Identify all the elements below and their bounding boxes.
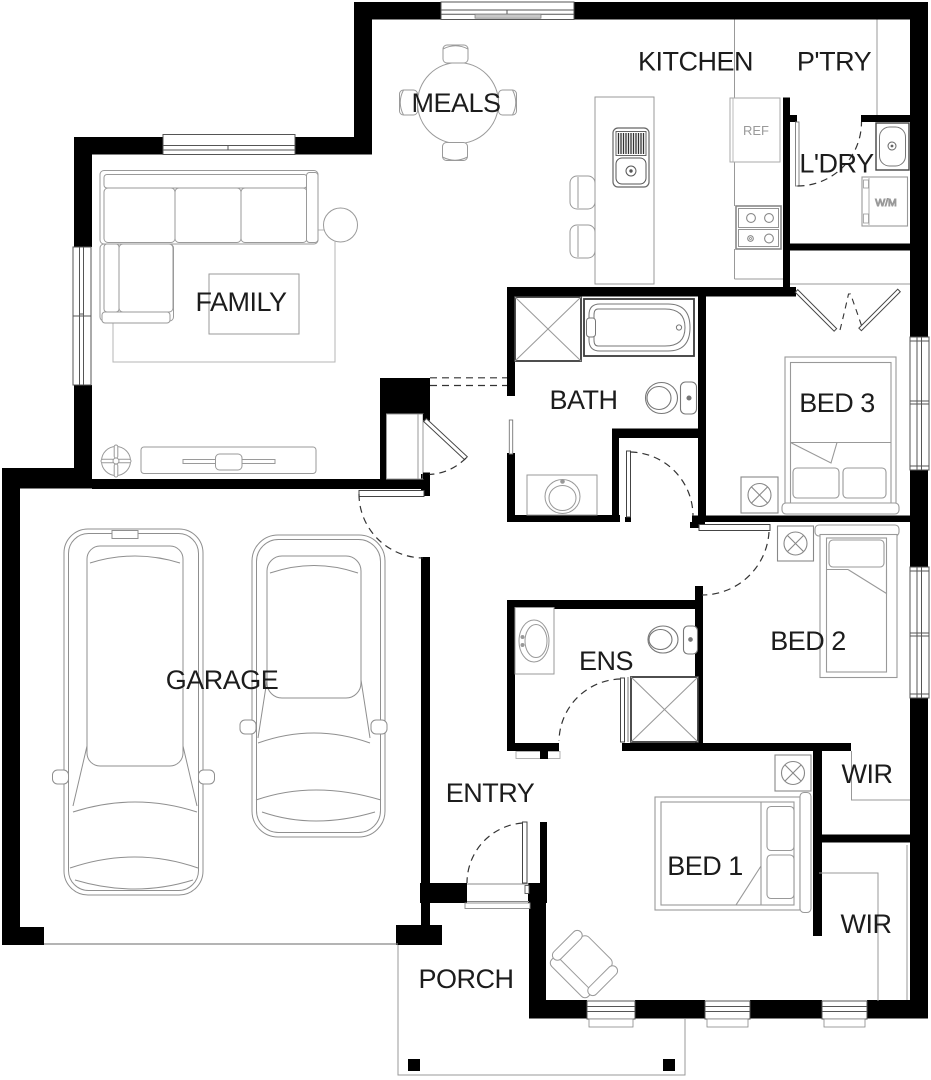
- svg-text:KITCHEN: KITCHEN: [638, 47, 753, 77]
- svg-text:FAMILY: FAMILY: [195, 287, 287, 317]
- svg-text:BED 1: BED 1: [667, 851, 743, 881]
- svg-text:BED 2: BED 2: [770, 626, 846, 656]
- svg-text:P'TRY: P'TRY: [797, 47, 872, 77]
- svg-text:ENTRY: ENTRY: [446, 778, 535, 808]
- svg-text:BED 3: BED 3: [799, 388, 875, 418]
- svg-text:WIR: WIR: [842, 759, 893, 789]
- svg-text:REF: REF: [743, 123, 769, 138]
- svg-text:MEALS: MEALS: [411, 88, 500, 118]
- svg-text:L'DRY: L'DRY: [799, 149, 874, 179]
- svg-text:WIR: WIR: [841, 909, 892, 939]
- svg-text:ENS: ENS: [579, 646, 633, 676]
- svg-text:PORCH: PORCH: [418, 964, 513, 994]
- svg-text:GARAGE: GARAGE: [166, 665, 279, 695]
- svg-text:BATH: BATH: [549, 385, 617, 415]
- svg-text:W/M: W/M: [875, 197, 897, 209]
